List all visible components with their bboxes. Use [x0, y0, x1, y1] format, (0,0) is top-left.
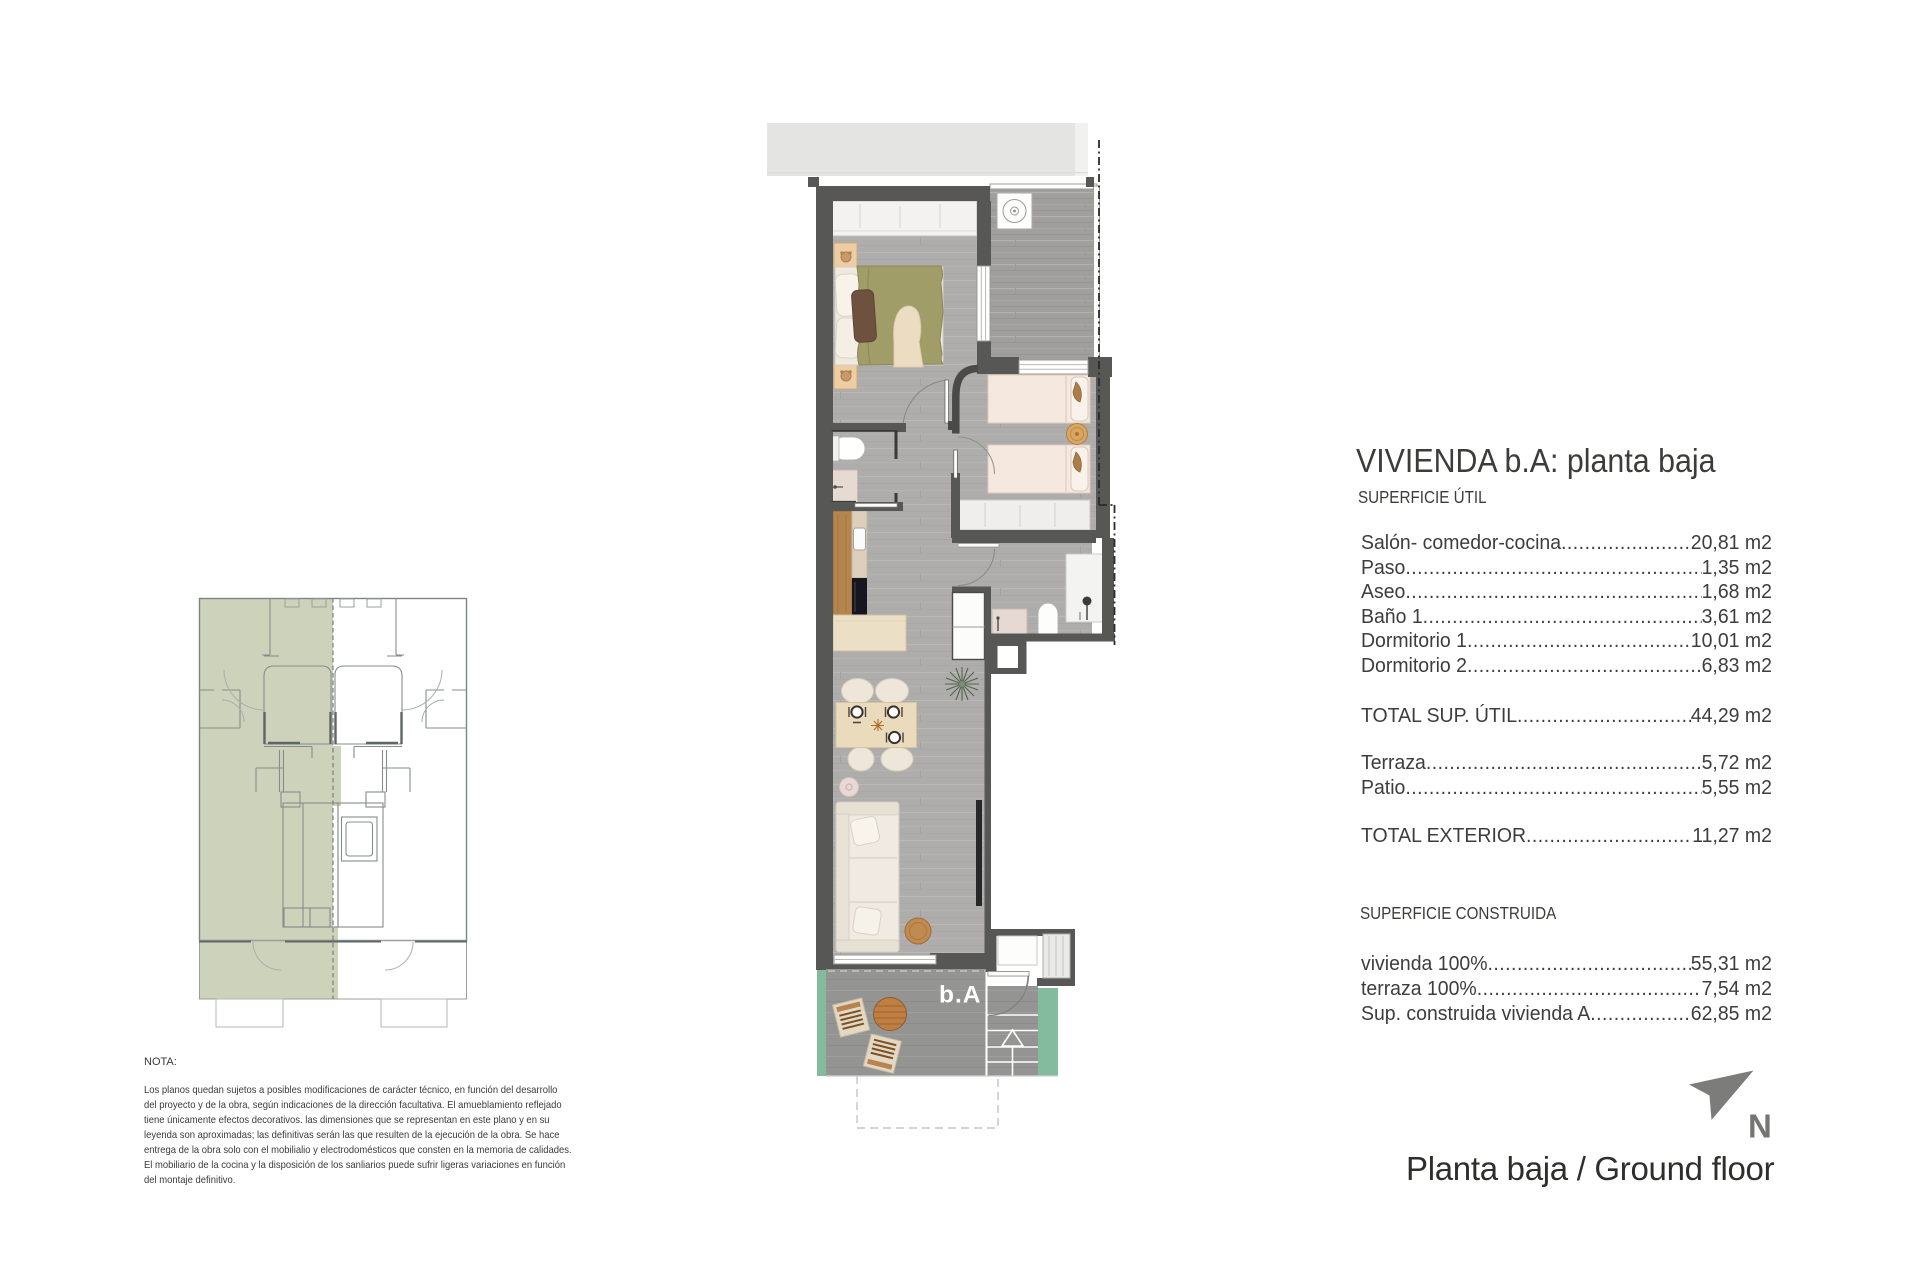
svg-text:N: N	[1748, 1108, 1772, 1145]
svg-text:b.A: b.A	[939, 982, 981, 1009]
